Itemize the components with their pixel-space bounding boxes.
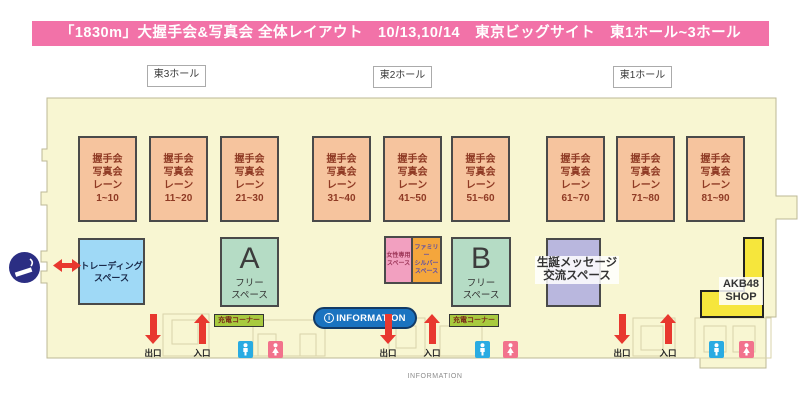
free-space-b-label: スペース <box>463 290 500 302</box>
restroom-male-icon <box>475 341 490 358</box>
entrance-arrow-icon <box>194 314 210 344</box>
hall-label-east2: 東2ホール <box>373 66 432 88</box>
entrance-arrow-icon <box>660 314 676 344</box>
restroom-female-icon <box>739 341 754 358</box>
lane-range: 11~20 <box>165 192 193 205</box>
akb48-shop-label: AKB48 SHOP <box>719 277 763 305</box>
restroom-female-icon <box>503 341 518 358</box>
birthday-message-label: 生誕メッセージ 交流スペース <box>535 256 619 284</box>
hall-label-east1: 東1ホール <box>613 66 672 88</box>
exit-arrow-icon <box>380 314 396 344</box>
lane-range: 81~90 <box>701 192 729 205</box>
lane-line: 握手会 <box>701 153 731 166</box>
free-space-a-label: フリー <box>235 278 264 290</box>
lane-line: レーン <box>93 179 123 192</box>
free-space-a-letter: A <box>239 243 259 275</box>
lane-line: レーン <box>235 179 265 192</box>
lane-block-41-50: 握手会 写真会 レーン 41~50 <box>383 136 442 222</box>
exit-label: 出口 <box>610 347 634 359</box>
akb48-shop-line: AKB48 <box>719 278 763 291</box>
smoking-area-icon <box>8 251 41 284</box>
hall-label-east3: 東3ホール <box>147 65 206 87</box>
lane-line: 握手会 <box>466 153 496 166</box>
lane-block-31-40: 握手会 写真会 レーン 31~40 <box>312 136 371 222</box>
birthday-message-line: 交流スペース <box>535 270 619 283</box>
lane-block-11-20: 握手会 写真会 レーン 11~20 <box>149 136 208 222</box>
restroom-male-icon <box>238 341 253 358</box>
trading-space-label: スペース <box>94 272 129 284</box>
family-silver-label: シルバー <box>414 260 438 268</box>
akb48-shop-line: SHOP <box>719 291 763 304</box>
entrance-label: 入口 <box>656 347 680 359</box>
information-bottom-label: INFORMATION <box>400 373 470 380</box>
lane-line: 写真会 <box>701 166 731 179</box>
lane-line: 握手会 <box>561 153 591 166</box>
lane-line: レーン <box>164 179 194 192</box>
entrance-label: 入口 <box>420 347 444 359</box>
lane-block-51-60: 握手会 写真会 レーン 51~60 <box>451 136 510 222</box>
free-space-b-label: フリー <box>467 278 496 290</box>
lane-line: 写真会 <box>164 166 194 179</box>
lane-line: レーン <box>466 179 496 192</box>
women-only-label: スペース <box>387 260 410 268</box>
lane-line: レーン <box>631 179 661 192</box>
double-arrow-icon <box>53 257 81 279</box>
lane-block-21-30: 握手会 写真会 レーン 21~30 <box>220 136 279 222</box>
entrance-label: 入口 <box>190 347 214 359</box>
trading-space-label: トレーディング <box>80 260 142 272</box>
free-space-b: B フリー スペース <box>451 237 511 307</box>
lane-line: 握手会 <box>327 153 357 166</box>
women-only-label: 女性専用 <box>386 252 410 260</box>
women-only-space: 女性専用 スペース <box>384 236 413 284</box>
lane-block-1-10: 握手会 写真会 レーン 1~10 <box>78 136 137 222</box>
lane-line: 写真会 <box>561 166 591 179</box>
lane-block-61-70: 握手会 写真会 レーン 61~70 <box>546 136 605 222</box>
charging-corner-label: 充電コーナー <box>449 314 499 327</box>
free-space-b-letter: B <box>471 243 491 275</box>
exit-label: 出口 <box>376 347 400 359</box>
charging-corner-label: 充電コーナー <box>214 314 264 327</box>
lane-line: 写真会 <box>466 166 496 179</box>
lane-range: 1~10 <box>96 192 119 205</box>
trading-space: トレーディング スペース <box>78 238 145 305</box>
lane-line: 写真会 <box>398 166 428 179</box>
family-silver-label: ファミリー <box>413 244 440 260</box>
lane-block-71-80: 握手会 写真会 レーン 71~80 <box>616 136 675 222</box>
birthday-message-line: 生誕メッセージ <box>535 257 619 270</box>
family-silver-label: スペース <box>415 268 438 276</box>
lane-range: 41~50 <box>398 192 426 205</box>
page-title: 「1830m」大握手会&写真会 全体レイアウト 10/13,10/14 東京ビッ… <box>32 21 769 46</box>
family-silver-space: ファミリー シルバー スペース <box>411 236 442 284</box>
lane-line: レーン <box>701 179 731 192</box>
lane-line: 握手会 <box>398 153 428 166</box>
lane-line: レーン <box>327 179 357 192</box>
free-space-a: A フリー スペース <box>220 237 279 307</box>
venue-layout-map: 「1830m」大握手会&写真会 全体レイアウト 10/13,10/14 東京ビッ… <box>0 0 800 401</box>
lane-line: 写真会 <box>235 166 265 179</box>
lane-block-81-90: 握手会 写真会 レーン 81~90 <box>686 136 745 222</box>
lane-range: 31~40 <box>327 192 355 205</box>
lane-line: レーン <box>561 179 591 192</box>
lane-range: 71~80 <box>631 192 659 205</box>
lane-line: 握手会 <box>631 153 661 166</box>
lane-line: 写真会 <box>327 166 357 179</box>
lane-range: 51~60 <box>466 192 494 205</box>
exit-arrow-icon <box>614 314 630 344</box>
lane-line: 握手会 <box>93 153 123 166</box>
lane-line: 写真会 <box>631 166 661 179</box>
free-space-a-label: スペース <box>231 290 268 302</box>
lane-line: レーン <box>398 179 428 192</box>
restroom-male-icon <box>709 341 724 358</box>
lane-line: 握手会 <box>235 153 265 166</box>
exit-arrow-icon <box>145 314 161 344</box>
lane-range: 21~30 <box>235 192 263 205</box>
exit-label: 出口 <box>141 347 165 359</box>
lane-range: 61~70 <box>561 192 589 205</box>
restroom-female-icon <box>268 341 283 358</box>
lane-line: 写真会 <box>93 166 123 179</box>
information-badge: i INFORMATION <box>313 307 417 329</box>
lane-line: 握手会 <box>164 153 194 166</box>
entrance-arrow-icon <box>424 314 440 344</box>
info-icon: i <box>324 313 334 323</box>
